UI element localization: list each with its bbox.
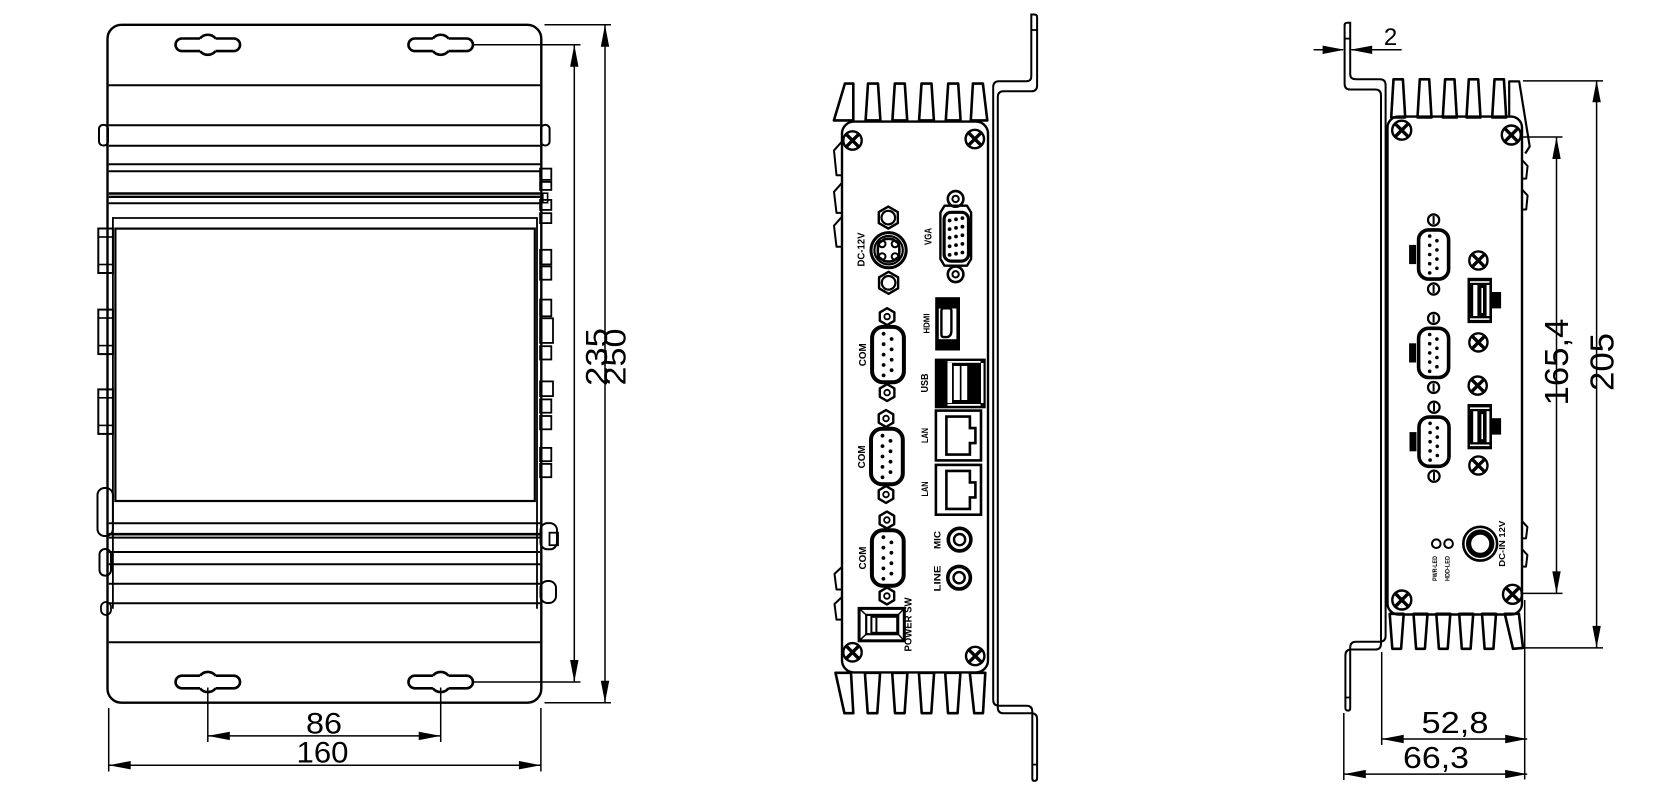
svg-text:MIC: MIC: [933, 530, 943, 549]
svg-text:COM: COM: [857, 445, 868, 468]
svg-text:160: 160: [297, 737, 349, 770]
svg-text:COM: COM: [858, 343, 869, 366]
svg-text:52,8: 52,8: [1422, 705, 1489, 740]
svg-text:250: 250: [598, 329, 633, 386]
svg-text:LAN: LAN: [920, 428, 930, 443]
svg-text:PWR-LED: PWR-LED: [1433, 555, 1439, 581]
svg-text:HDMI: HDMI: [922, 314, 932, 334]
svg-text:2: 2: [1384, 24, 1397, 51]
svg-text:66,3: 66,3: [1403, 740, 1469, 775]
svg-text:HDD-LED: HDD-LED: [1445, 555, 1451, 581]
svg-text:LAN: LAN: [920, 482, 930, 497]
svg-text:205: 205: [1584, 333, 1621, 391]
svg-text:165,4: 165,4: [1538, 319, 1575, 406]
svg-text:POWER SW: POWER SW: [904, 597, 915, 652]
svg-text:DC-12V: DC-12V: [857, 232, 868, 266]
svg-text:USB: USB: [920, 374, 931, 393]
svg-text:LINE: LINE: [933, 566, 943, 592]
svg-text:DC-IN 12V: DC-IN 12V: [1497, 520, 1507, 566]
svg-text:COM: COM: [858, 547, 869, 570]
svg-text:VGA: VGA: [924, 228, 935, 245]
